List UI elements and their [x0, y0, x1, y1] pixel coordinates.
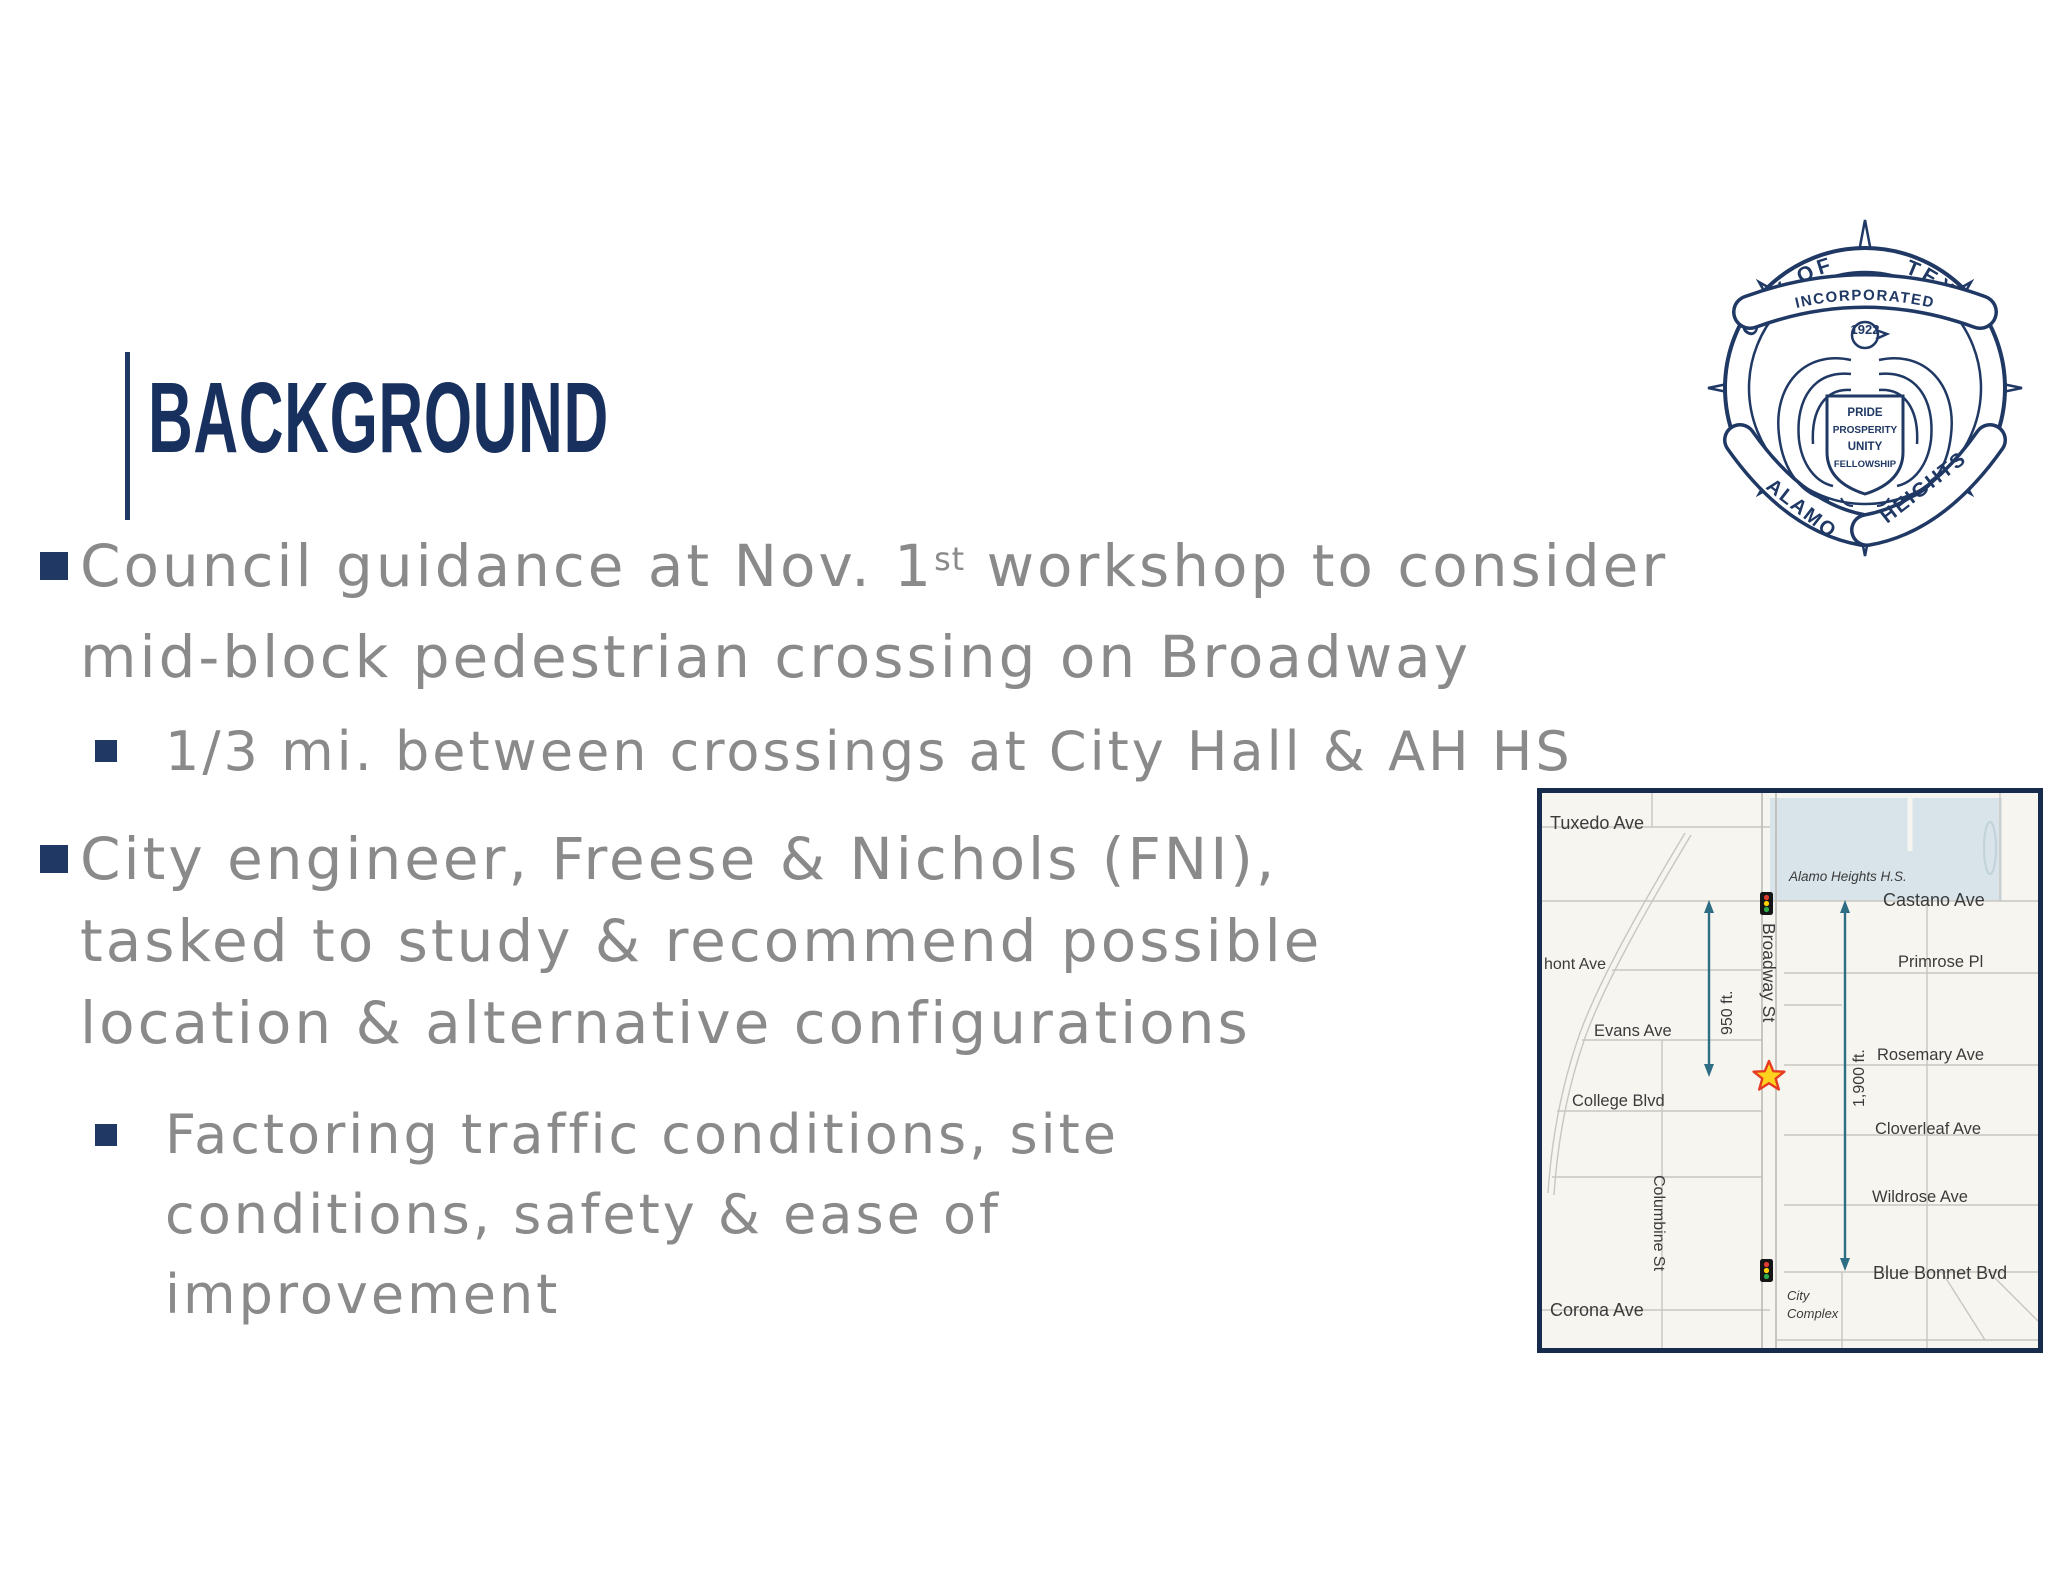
sub-bullet-2-line-1: Factoring traffic conditions, site — [165, 1095, 1119, 1175]
bullet-1-text: Council guidance at Nov. 1 — [80, 532, 934, 600]
bullet-2-line-2: tasked to study & recommend possible — [80, 900, 1322, 982]
map-label-castano: Castano Ave — [1883, 890, 1985, 910]
bullet-item-2: City engineer, Freese & Nichols (FNI), t… — [80, 818, 1322, 1064]
slide: CITY OF TEXAS INCORPORATED 1922 ALAMO HE… — [0, 0, 2048, 1582]
map-label-city-complex: City — [1787, 1288, 1811, 1303]
seal-shield-line: FELLOWSHIP — [1834, 459, 1897, 470]
map-label-evans: Evans Ave — [1594, 1022, 1672, 1040]
bullet-square — [40, 552, 68, 580]
sub-bullet-2-line-3: improvement — [165, 1255, 1119, 1335]
ordinal-superscript: st — [934, 540, 965, 578]
map-label-corona: Corona Ave — [1550, 1300, 1644, 1320]
bullet-square — [95, 740, 117, 762]
map-label-city-complex: Complex — [1787, 1306, 1839, 1321]
traffic-light-icon — [1760, 1259, 1773, 1282]
map-label-college: College Blvd — [1572, 1092, 1665, 1110]
seal-year: 1922 — [1851, 322, 1880, 337]
map-label-wildrose: Wildrose Ave — [1872, 1188, 1968, 1206]
map-label-broadway: Broadway St — [1759, 923, 1779, 1022]
seal-shield-line: PROSPERITY — [1833, 425, 1898, 436]
bullet-2-line-1: City engineer, Freese & Nichols (FNI), — [80, 818, 1322, 900]
map-label-school: Alamo Heights H.S. — [1788, 869, 1907, 884]
sub-bullet-1-line: 1/3 mi. between crossings at City Hall &… — [165, 712, 1573, 792]
seal-shield-line: UNITY — [1848, 441, 1883, 453]
title-accent-bar — [125, 352, 130, 520]
bullet-1-text-cont: workshop to consider — [965, 532, 1668, 600]
page-title: BACKGROUND — [148, 368, 609, 468]
bullet-1-line-1: Council guidance at Nov. 1st workshop to… — [80, 525, 1668, 616]
map-label-columbine: Columbine St — [1650, 1175, 1667, 1272]
map-label-rosemary: Rosemary Ave — [1877, 1046, 1984, 1064]
map-label-bluebonnet: Blue Bonnet Bvd — [1873, 1263, 2007, 1283]
map-label-950ft: 950 ft. — [1719, 991, 1736, 1035]
map-label-tuxedo: Tuxedo Ave — [1550, 813, 1644, 833]
location-map-inset: Tuxedo Ave Alamo Heights H.S. Castano Av… — [1537, 788, 2043, 1353]
broadway-map: Tuxedo Ave Alamo Heights H.S. Castano Av… — [1542, 793, 2038, 1348]
bullet-square — [40, 845, 68, 873]
bullet-2-line-3: location & alternative configurations — [80, 982, 1322, 1064]
map-label-primrose: Primrose Pl — [1898, 953, 1983, 971]
city-seal: CITY OF TEXAS INCORPORATED 1922 ALAMO HE… — [1695, 200, 2040, 565]
map-label-cloverleaf: Cloverleaf Ave — [1875, 1120, 1981, 1138]
bullet-square — [95, 1124, 117, 1146]
seal-shield-line: PRIDE — [1847, 407, 1882, 419]
bullet-item-1: Council guidance at Nov. 1st workshop to… — [80, 525, 1668, 698]
alamo-heights-seal-icon: CITY OF TEXAS INCORPORATED 1922 ALAMO HE… — [1695, 200, 2040, 565]
map-label-mont: hont Ave — [1544, 956, 1606, 973]
bullet-1-line-2: mid-block pedestrian crossing on Broadwa… — [80, 616, 1668, 698]
map-label-1900ft: 1,900 ft. — [1851, 1049, 1868, 1107]
school-grounds — [1770, 798, 2002, 901]
sub-bullet-2: Factoring traffic conditions, site condi… — [165, 1095, 1119, 1335]
traffic-light-icon — [1760, 892, 1773, 915]
sub-bullet-1: 1/3 mi. between crossings at City Hall &… — [165, 712, 1573, 792]
sub-bullet-2-line-2: conditions, safety & ease of — [165, 1175, 1119, 1255]
